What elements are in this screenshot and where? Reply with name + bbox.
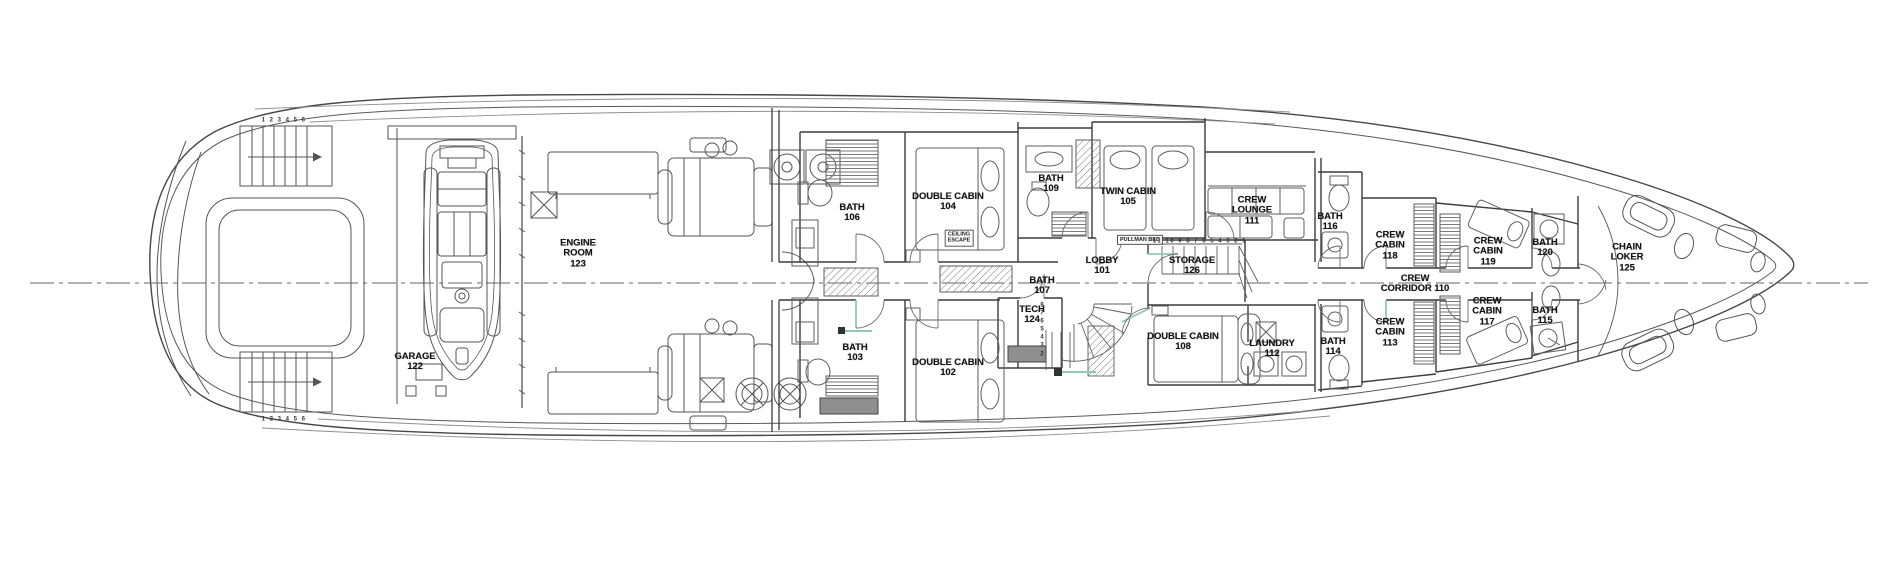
yacht-lower-deck-plan: GARAGE122ENGINEROOM123BATH106DOUBLE CABI… <box>0 0 1900 570</box>
bath-106-fixtures <box>792 140 878 266</box>
guest-area-furniture <box>792 140 1306 422</box>
laundry-machines <box>1254 322 1306 376</box>
garage-furniture <box>406 364 446 396</box>
stern-platform <box>157 126 516 412</box>
cabin-117-beds <box>1440 296 1529 365</box>
bath-120-fixtures <box>1534 214 1564 276</box>
cross-box-symbol <box>531 192 557 218</box>
hawse-box-top <box>1619 191 1679 241</box>
engine-port <box>658 138 772 236</box>
bath-103-fixtures <box>792 298 878 414</box>
windlass-top <box>1714 223 1758 254</box>
bath-116-fixtures <box>1322 176 1349 258</box>
windlass-bottom <box>1714 312 1758 343</box>
cabin-113-bunk <box>1414 302 1434 364</box>
garage-bulkhead-hatching <box>519 136 525 408</box>
hawse-box-bottom <box>1618 325 1678 375</box>
cabin-108-bed <box>1152 306 1260 384</box>
floor-hatches <box>700 378 806 410</box>
bath-103-hatch-marker <box>838 327 872 334</box>
engine-starboard <box>658 319 772 430</box>
corridor-wardrobe-fwd <box>940 266 1012 292</box>
aft-stairs-top <box>240 126 332 186</box>
door-swings-accent <box>856 254 1386 334</box>
crew-area-walls <box>1315 158 1580 392</box>
tech-gray-unit <box>1008 346 1046 362</box>
cabin-102-bed <box>906 308 1004 422</box>
engine-room <box>548 108 840 432</box>
bath-114-fixtures <box>1322 306 1349 389</box>
crew-lounge-sofa <box>1208 186 1306 238</box>
corridor-double-door <box>782 252 814 310</box>
storage-stairs <box>1160 244 1258 298</box>
garage <box>397 128 557 408</box>
deck-plan-drawing <box>0 0 1900 570</box>
tender-boat <box>423 140 500 380</box>
cabin-118-bunk <box>1414 204 1434 266</box>
lobby-spiral-stairs <box>1046 304 1132 376</box>
aft-stairs-bottom <box>240 352 332 412</box>
twin-105-beds <box>1076 140 1194 230</box>
corridor-wardrobe-aft <box>824 268 878 296</box>
cabin-104-bed <box>906 148 1004 262</box>
